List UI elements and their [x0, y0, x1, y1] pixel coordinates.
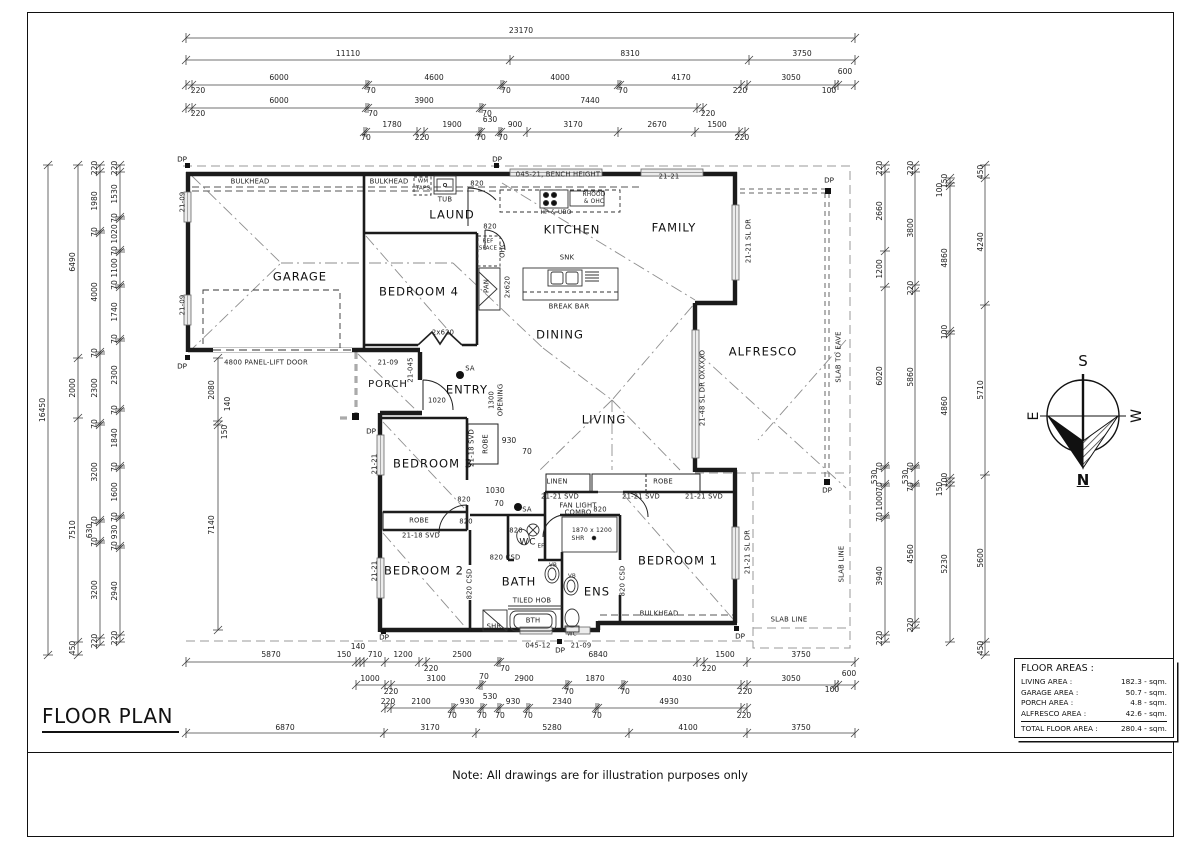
compass-north: N	[1077, 471, 1090, 487]
north-arrow-hatched-wing	[1083, 416, 1118, 468]
dimension-label: 70	[479, 673, 489, 681]
room-label: ENTRY	[446, 384, 488, 396]
annotation-label: COMBO	[565, 510, 592, 517]
dimension-label: 450	[69, 641, 77, 656]
table-row: GARAGE AREA : 50.7 - sqm.	[1021, 688, 1167, 697]
dimension-label: 70	[500, 665, 510, 673]
annotation-label: 21-21 SVD	[685, 494, 723, 501]
downpipe-label: DP	[379, 633, 389, 640]
dimension-label: 2300	[111, 365, 119, 384]
annotation-label: ROBE	[483, 434, 490, 454]
annotation-label: BULKHEAD	[370, 179, 409, 186]
table-row: LIVING AREA : 182.3 - sqm.	[1021, 677, 1167, 686]
dimension-label: 1020	[111, 224, 119, 243]
annotation-label: WM	[418, 179, 429, 185]
dimension-label: 220	[191, 87, 206, 95]
room-label: ENS	[584, 586, 610, 598]
dimension-label: 150	[936, 482, 944, 497]
annotation-label: 21-045	[408, 357, 415, 382]
room-label: BATH	[502, 576, 537, 588]
annotation-label: 21-09	[571, 643, 592, 650]
dimension-label: 220	[701, 110, 716, 118]
dimension-label: 3750	[791, 651, 810, 659]
dimension-label: 70	[91, 537, 99, 547]
floor-areas-heading: FLOOR AREAS :	[1021, 663, 1167, 674]
dimension-label: 100	[822, 87, 837, 95]
annotation-label: TAPS	[416, 186, 430, 192]
dimension-label: 4860	[941, 396, 949, 415]
dimension-label: 1500	[707, 121, 726, 129]
annotation-label: 045-12	[525, 643, 550, 650]
dimension-label: 220	[733, 87, 748, 95]
dimension-label: 1000	[360, 675, 379, 683]
dimension-label: 220	[111, 631, 119, 646]
dimension-label: 3940	[876, 566, 884, 585]
dimension-label: 6870	[275, 724, 294, 732]
dimension-label: 6020	[876, 366, 884, 385]
dimension-label: 220	[737, 712, 752, 720]
dimension-label: 930	[460, 698, 475, 706]
annotation-label: 21-21	[372, 561, 379, 582]
dimension-label: 70	[91, 227, 99, 237]
dimension-label: 70	[523, 712, 533, 720]
annotation-label: 820	[509, 528, 523, 535]
annotation-label: REF	[482, 239, 493, 245]
annotation-label: 21-09	[180, 192, 187, 213]
dimension-label: 4930	[659, 698, 678, 706]
dimension-label: 6840	[588, 651, 607, 659]
annotation-label: LINEN	[546, 479, 567, 486]
annotation-label: 820 CSD	[490, 555, 521, 562]
dimension-label: 1100	[111, 258, 119, 277]
annotation-label: 21-21	[659, 174, 680, 181]
annotation-label: SLAB LINE	[771, 617, 808, 624]
dimension-label: 3200	[91, 580, 99, 599]
dimension-label: 4100	[678, 724, 697, 732]
floor-areas-table: FLOOR AREAS : LIVING AREA : 182.3 - sqm.…	[1014, 658, 1174, 738]
annotation-label: BTH	[526, 618, 541, 625]
room-label: BEDROOM 2	[384, 565, 464, 577]
annotation-label: SHR	[571, 536, 584, 542]
room-label: LAUND	[429, 209, 474, 221]
downpipe-label: DP	[555, 646, 565, 653]
dimension-label: 70	[494, 500, 504, 508]
annotation-label: PAN	[484, 279, 491, 293]
room-label: KITCHEN	[544, 224, 601, 236]
dimension-label: 100	[941, 325, 949, 340]
annotation-label: 045-21, BENCH HEIGHT	[516, 172, 600, 179]
annotation-label: 21-09	[378, 360, 399, 367]
annotation-label: SA	[465, 366, 475, 373]
dimension-label: 11110	[336, 50, 360, 58]
dimension-label: 16450	[39, 398, 47, 422]
annotation-label: 1870 x 1200	[572, 528, 612, 534]
dimension-label: 1870	[585, 675, 604, 683]
dimension-label: 100	[825, 686, 840, 694]
dimension-label: 630	[483, 116, 498, 124]
annotation-label: 2x620	[432, 330, 454, 337]
dimension-label: 4860	[941, 248, 949, 267]
annotation-label: 1020	[428, 398, 446, 405]
annotation-label: OPENING	[498, 384, 505, 417]
room-label: DINING	[536, 329, 584, 341]
dimension-label: 8310	[620, 50, 639, 58]
dimension-label: 2940	[111, 581, 119, 600]
dimension-label: 5280	[542, 724, 561, 732]
dimension-label: 220	[738, 688, 753, 696]
dimension-label: 3200	[91, 462, 99, 481]
annotation-label: ROBE	[653, 479, 673, 486]
dimension-label: 5600	[977, 548, 985, 567]
dimension-label: 70	[592, 712, 602, 720]
downpipe-label: DP	[824, 176, 834, 183]
room-label: FAMILY	[652, 222, 697, 234]
annotation-label: EF	[537, 544, 544, 550]
dimension-label: 70	[501, 87, 511, 95]
annotation-label: OHC	[500, 242, 507, 258]
dimension-label: 6490	[69, 252, 77, 271]
dimension-label: 70	[111, 541, 119, 551]
downpipe-label: DP	[366, 427, 376, 434]
downpipe-label: DP	[177, 155, 187, 162]
dimension-label: 1200	[876, 259, 884, 278]
annotation-label: HP & UBO	[540, 210, 571, 216]
annotation-label: VB	[549, 563, 557, 569]
table-row: PORCH AREA : 4.8 - sqm.	[1021, 698, 1167, 707]
area-label: GARAGE AREA :	[1021, 688, 1078, 697]
dimension-label: 70	[111, 512, 119, 522]
dimension-label: 140	[351, 643, 366, 651]
area-value: 280.4 - sqm.	[1121, 724, 1167, 733]
room-label: BEDROOM 1	[638, 555, 718, 567]
dimension-label: 3800	[907, 218, 915, 237]
dimension-label: 1600	[111, 482, 119, 501]
area-label: TOTAL FLOOR AREA :	[1021, 724, 1098, 733]
dimension-label: 3050	[781, 675, 800, 683]
dimension-label: 70	[111, 246, 119, 256]
area-value: 42.6 - sqm.	[1126, 709, 1167, 718]
dimension-label: 220	[191, 110, 206, 118]
dimension-label: 3100	[426, 675, 445, 683]
downpipe-label: DP	[177, 362, 187, 369]
dimension-label: 4560	[907, 544, 915, 563]
area-label: PORCH AREA :	[1021, 698, 1073, 707]
dimension-label: 150	[221, 425, 229, 440]
dimension-label: 220	[424, 665, 439, 673]
annotation-label: SLAB TO EAVE	[836, 331, 843, 382]
area-label: LIVING AREA :	[1021, 677, 1072, 686]
annotation-label: SA	[522, 507, 532, 514]
dimension-label: 1030	[485, 487, 504, 495]
dimension-label: 3170	[563, 121, 582, 129]
dimension-label: 1980	[91, 191, 99, 210]
dimension-label: 70	[564, 688, 574, 696]
dimension-label: 5860	[907, 367, 915, 386]
dimension-label: 1840	[111, 428, 119, 447]
room-label: WC	[519, 539, 536, 548]
dimension-label: 220	[876, 631, 884, 646]
room-label: PORCH	[368, 380, 408, 390]
table-row: ALFRESCO AREA : 42.6 - sqm.	[1021, 709, 1167, 718]
dimension-label: 7140	[208, 515, 216, 534]
dimension-label: 70	[111, 462, 119, 472]
downpipe-label: DP	[822, 486, 832, 493]
annotation-label: 21-21 SL DR	[746, 219, 753, 263]
dimension-label: 70	[368, 110, 378, 118]
dimension-label: 70	[876, 512, 884, 522]
dimension-label: 100	[936, 183, 944, 198]
compass-south: S	[1078, 352, 1088, 370]
annotation-label: 21-09	[180, 295, 187, 316]
dimension-label: 1200	[393, 651, 412, 659]
dimension-label: 3050	[781, 74, 800, 82]
annotation-label: 820	[457, 497, 471, 504]
dimension-label: 220	[384, 688, 399, 696]
dimension-label: 220	[111, 161, 119, 176]
annotation-label: 1300	[489, 391, 496, 409]
dimension-label: 930	[506, 698, 521, 706]
dimension-label: 6000	[269, 74, 288, 82]
disclaimer-note: Note: All drawings are for illustration …	[0, 768, 1200, 782]
dimension-label: 70	[111, 405, 119, 415]
dimension-label: 70	[111, 334, 119, 344]
dimension-label: 450	[977, 641, 985, 656]
dimension-label: 70	[477, 712, 487, 720]
annotation-label: & OHC	[584, 200, 604, 206]
dimension-label: 2670	[647, 121, 666, 129]
annotation-label: 21-21 SL DR	[745, 530, 752, 574]
downpipe-label: DP	[735, 632, 745, 639]
downpipe-label: DP	[492, 155, 502, 162]
annotation-label: 21-48 SL DR OXXXXO	[700, 350, 707, 426]
dimension-label: 2080	[208, 380, 216, 399]
dimension-label: 1780	[382, 121, 401, 129]
floor-plan-sheet: 2317011110831037506000460040004170305060…	[0, 0, 1200, 848]
dimension-label: 1500	[715, 651, 734, 659]
dimension-label: 5710	[977, 380, 985, 399]
annotation-label: BULKHEAD	[231, 179, 270, 186]
annotation-label: ROBE	[409, 518, 429, 525]
dimension-label: 900	[508, 121, 523, 129]
annotation-label: BULKHEAD	[640, 611, 679, 618]
dimension-label: 220	[907, 618, 915, 633]
dimension-label: 2300	[91, 378, 99, 397]
dimension-label: 220	[876, 161, 884, 176]
dimension-label: 70	[91, 419, 99, 429]
dimension-label: 70	[498, 134, 508, 142]
dimension-label: 1740	[111, 302, 119, 321]
dimension-label: 450	[977, 165, 985, 180]
dimension-label: 220	[702, 665, 717, 673]
dimension-label: 220	[735, 134, 750, 142]
compass-east: E	[1026, 412, 1042, 421]
dimension-label: 220	[91, 161, 99, 176]
dimension-label: 70	[111, 213, 119, 223]
area-label: ALFRESCO AREA :	[1021, 709, 1086, 718]
annotation-label: 820 CSD	[620, 566, 627, 597]
annotation-label: 820 CSD	[467, 569, 474, 600]
dimension-label: 220	[91, 634, 99, 649]
dimension-label: 1000	[876, 491, 884, 510]
dimension-label: 4170	[671, 74, 690, 82]
dimension-label: 2100	[411, 698, 430, 706]
page-title: FLOOR PLAN	[42, 704, 179, 733]
dimension-label: 5230	[941, 554, 949, 573]
annotation-label: BREAK BAR	[549, 304, 590, 311]
dimension-label: 930	[111, 525, 119, 540]
dimension-label: 2900	[514, 675, 533, 683]
annotation-label: SNK	[560, 255, 574, 262]
annotation-label: 2x620	[505, 276, 512, 298]
dimension-label: 70	[476, 134, 486, 142]
room-label: BEDROOM 4	[379, 286, 459, 298]
annotation-label: RHOOD	[583, 193, 606, 199]
annotation-label: SHR	[487, 624, 502, 631]
dimension-label: 930	[502, 437, 517, 445]
annotation-label: 21-21 SVD	[622, 494, 660, 501]
dimension-label: 1900	[442, 121, 461, 129]
dimension-label: 710	[368, 651, 383, 659]
annotation-label: 820	[483, 224, 497, 231]
dimension-label: 3750	[791, 724, 810, 732]
dimension-label: 70	[907, 482, 915, 492]
dimension-label: 4240	[977, 232, 985, 251]
dimension-label: 5870	[261, 651, 280, 659]
dimension-label: 70	[522, 448, 532, 456]
dimension-label: 70	[91, 348, 99, 358]
dimension-label: 70	[111, 280, 119, 290]
north-arrow-dark-wing	[1048, 416, 1083, 468]
dimension-label: 70	[618, 87, 628, 95]
compass-west: W	[1129, 409, 1145, 423]
annotation-label: 21-18 SVD	[469, 429, 476, 467]
north-arrow-compass: S N E W	[1025, 352, 1145, 487]
note-divider	[27, 752, 1172, 753]
dimension-label: 4600	[424, 74, 443, 82]
annotation-label: 21-18 SVD	[402, 533, 440, 540]
dimension-label: 220	[907, 161, 915, 176]
room-label: BEDROOM 3	[393, 458, 473, 470]
dimension-label: 2340	[552, 698, 571, 706]
dimension-label: 70	[620, 688, 630, 696]
dimension-label: 150	[337, 651, 352, 659]
annotation-label: 820	[470, 181, 484, 188]
dimension-label: 2000	[69, 378, 77, 397]
annotation-label: SPACE	[479, 246, 497, 252]
dimension-label: 600	[838, 68, 853, 76]
room-label: GARAGE	[273, 271, 327, 283]
room-label: LIVING	[582, 414, 627, 426]
annotation-label: WC	[567, 632, 577, 638]
dimension-label: 3750	[792, 50, 811, 58]
annotation-label: 4800 PANEL-LIFT DOOR	[224, 360, 308, 367]
dimension-label: 530	[483, 693, 498, 701]
annotation-label: 820	[459, 519, 473, 526]
annotation-label: TUB	[438, 197, 452, 204]
area-value: 50.7 - sqm.	[1126, 688, 1167, 697]
dimension-label: 220	[415, 134, 430, 142]
dimension-label: 220	[907, 281, 915, 296]
dimension-label: 6000	[269, 97, 288, 105]
dimension-label: 4000	[91, 282, 99, 301]
annotation-label: 21-21	[372, 454, 379, 475]
dimension-label: 7440	[580, 97, 599, 105]
dimension-label: 600	[842, 670, 857, 678]
dimension-label: 220	[381, 698, 396, 706]
annotation-label: TILED HOB	[513, 598, 552, 605]
dimension-label: 4000	[550, 74, 569, 82]
table-row-total: TOTAL FLOOR AREA : 280.4 - sqm.	[1021, 721, 1167, 733]
dimension-label: 3170	[420, 724, 439, 732]
dimension-label: 3900	[414, 97, 433, 105]
area-value: 4.8 - sqm.	[1130, 698, 1167, 707]
dimension-label: 2500	[452, 651, 471, 659]
dimension-label: 70	[366, 87, 376, 95]
annotation-label: VB	[568, 574, 576, 580]
annotation-label: SLAB LINE	[839, 546, 846, 583]
dimension-label: 2660	[876, 201, 884, 220]
dimension-label: 7510	[69, 520, 77, 539]
area-value: 182.3 - sqm.	[1121, 677, 1167, 686]
dimension-label: 70	[361, 134, 371, 142]
dimension-label: 70	[447, 712, 457, 720]
annotation-label: 21-21 SVD	[541, 494, 579, 501]
dimension-label: 23170	[509, 27, 533, 35]
dimension-label: 70	[495, 712, 505, 720]
dimension-label: 1530	[111, 184, 119, 203]
room-label: ALFRESCO	[729, 346, 798, 358]
dimension-label: 140	[224, 397, 232, 412]
dimension-label: 4030	[672, 675, 691, 683]
